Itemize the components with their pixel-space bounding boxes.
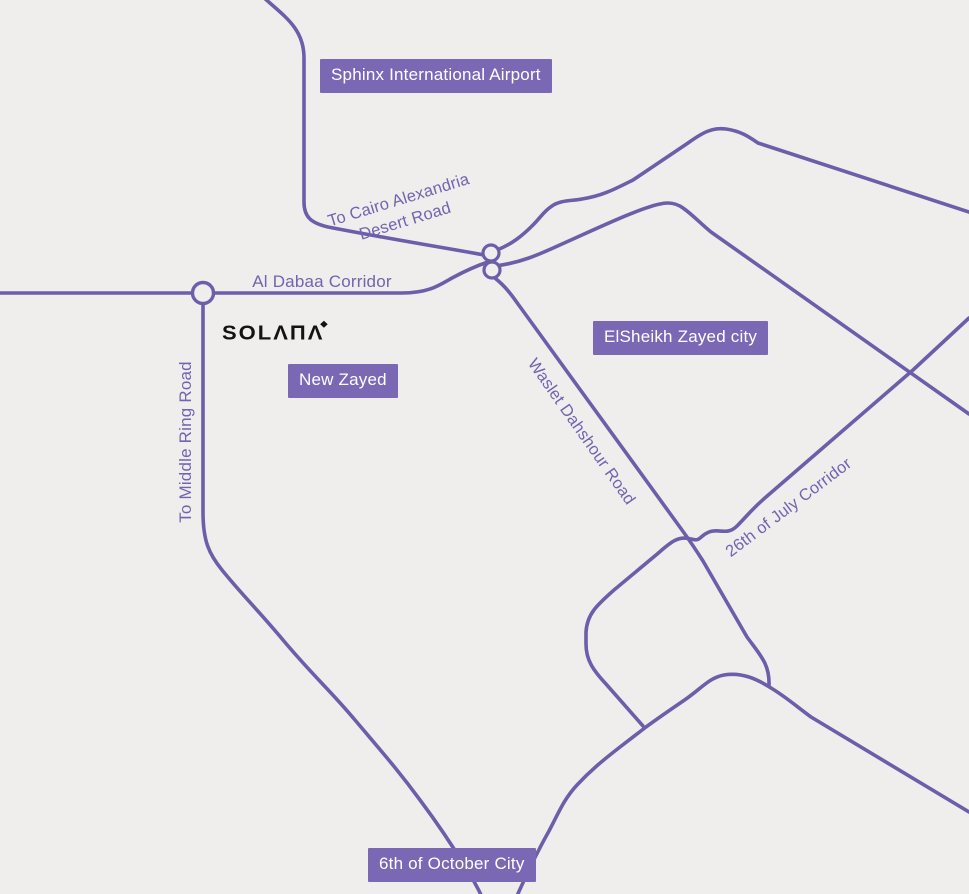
label-new-zayed: New Zayed [288,364,398,398]
road-al-dabaa-corridor [0,262,488,293]
interchange-node-central-top [483,245,499,261]
solana-logo-text: SOLΛПΛ [222,321,324,344]
road-cairo-alexandria [497,129,969,250]
label-sphinx-international-airport: Sphinx International Airport [320,59,552,93]
solana-logo: SOLΛПΛ◆ [222,321,331,345]
interchange-node-al-dabaa [193,283,214,304]
label-6th-of-october-city: 6th of October City [368,848,536,882]
interchange-node-central-bottom [484,262,500,278]
road-label-to-middle-ring-road: To Middle Ring Road [176,361,196,523]
location-map: Sphinx International Airport ElSheikh Za… [0,0,969,894]
label-elsheikh-zayed-city: ElSheikh Zayed city [593,321,768,355]
road-network [0,0,969,894]
road-south-loop [516,674,969,894]
solana-logo-mark: ◆ [320,319,327,328]
road-label-al-dabaa-corridor: Al Dabaa Corridor [252,272,391,292]
